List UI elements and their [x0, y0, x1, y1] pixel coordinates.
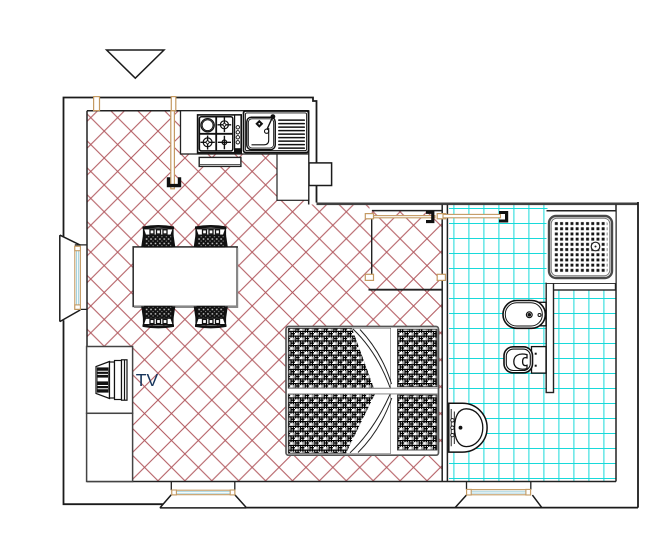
svg-text:TV: TV: [136, 370, 159, 390]
